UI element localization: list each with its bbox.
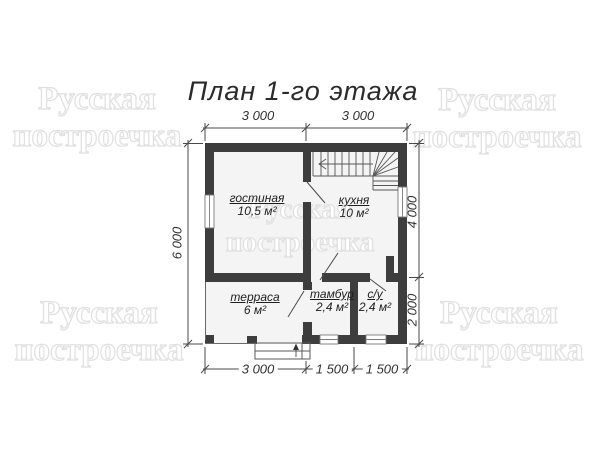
dimension-lines (183, 123, 424, 374)
room-label-vestibule: тамбур 2,4 м² (310, 288, 354, 313)
dim-top-left: 3 000 (242, 108, 275, 123)
room-label-living: гостиная 10,5 м² (230, 192, 285, 217)
room-area: 2,4 м² (359, 301, 391, 313)
window-bathroom-bottom (366, 335, 386, 344)
dim-top-right: 3 000 (342, 108, 375, 123)
staircase (313, 152, 398, 190)
room-name: гостиная (230, 192, 285, 204)
dim-right-upper: 4 000 (405, 196, 420, 229)
room-name: кухня (339, 194, 370, 206)
dim-bottom-left: 3 000 (239, 362, 278, 377)
dim-bottom-right: 1 500 (363, 362, 402, 377)
room-area: 10,5 м² (230, 205, 285, 217)
room-name: терраса (230, 291, 279, 303)
entry-arrow-head (293, 344, 299, 351)
room-name: тамбур (310, 288, 354, 300)
door-living-kitchen (307, 182, 325, 203)
room-area: 10 м² (339, 207, 370, 219)
room-area: 2,4 м² (310, 301, 354, 313)
room-name: с/у (359, 288, 391, 300)
door-terrace-vestibule (288, 291, 304, 317)
door-kitchen-vestibule (320, 253, 338, 280)
dim-left: 6 000 (170, 227, 185, 260)
room-area: 6 м² (230, 304, 279, 316)
window-living-left (205, 195, 214, 228)
room-label-terrace: терраса 6 м² (230, 291, 279, 316)
window-vestibule-bottom (320, 335, 338, 344)
plan-linework (0, 0, 604, 453)
porch-steps (255, 343, 310, 359)
dim-bottom-middle: 1 500 (313, 362, 352, 377)
room-label-bathroom: с/у 2,4 м² (359, 288, 391, 313)
dim-right-lower: 2 000 (405, 294, 420, 327)
room-label-kitchen: кухня 10 м² (339, 194, 370, 219)
